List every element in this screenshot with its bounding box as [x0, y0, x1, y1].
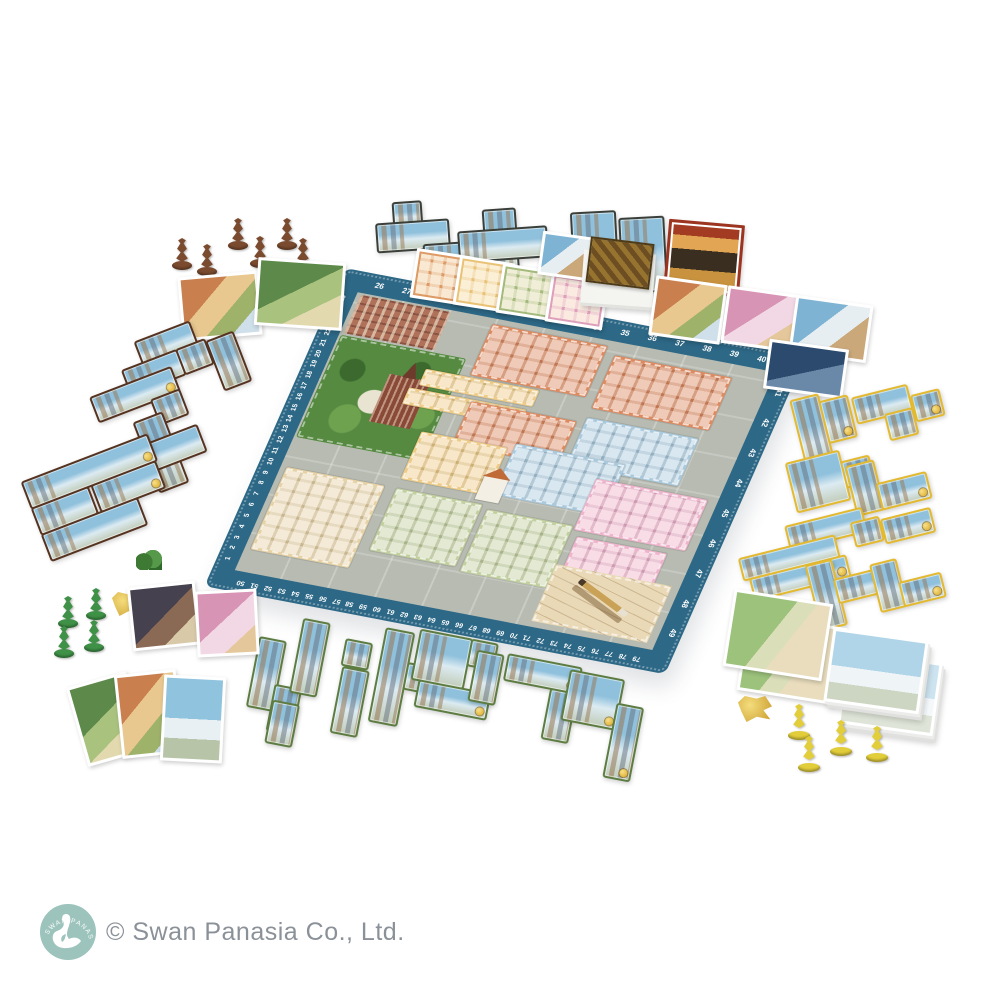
yellow-meeple — [830, 720, 852, 756]
pencil-art — [577, 578, 628, 617]
brown-meeple — [197, 244, 217, 276]
ornate-tile-back — [585, 236, 654, 289]
yellow-tile-group — [851, 376, 952, 451]
swan-logo-graphic: SWAN PANASIA — [38, 902, 98, 962]
white-card-stack — [823, 628, 928, 715]
brown-meeple — [172, 238, 192, 270]
yellow-meeple — [788, 704, 810, 740]
fanned-card — [160, 674, 226, 763]
green-tile-group — [327, 638, 376, 742]
green-tile-group — [551, 669, 651, 783]
plant-token — [136, 550, 162, 570]
yellow-meeple — [798, 736, 820, 772]
green-meeple — [84, 620, 104, 652]
copyright-text: © Swan Panasia Co., Ltd. — [106, 918, 405, 947]
scene-tile — [648, 275, 728, 344]
scene-tile — [254, 257, 347, 331]
photo-stage: 262728293031323334353637383940 414243444… — [0, 0, 1000, 1000]
gold-token — [738, 696, 772, 722]
orange-district-2 — [591, 355, 732, 431]
field-card — [723, 589, 834, 682]
swan-panasia-logo: SWAN PANASIA — [38, 902, 98, 962]
yellow-meeple — [866, 726, 888, 762]
yellow-tile-group — [869, 549, 945, 613]
brown-tile-group — [20, 428, 193, 568]
green-meeple — [86, 588, 106, 620]
green-meeple — [58, 596, 78, 628]
green-tile-group — [289, 618, 333, 697]
green-meeple — [54, 626, 74, 658]
character-card-dark — [127, 581, 201, 652]
brown-meeple — [228, 218, 248, 250]
character-card-pink — [194, 588, 259, 657]
